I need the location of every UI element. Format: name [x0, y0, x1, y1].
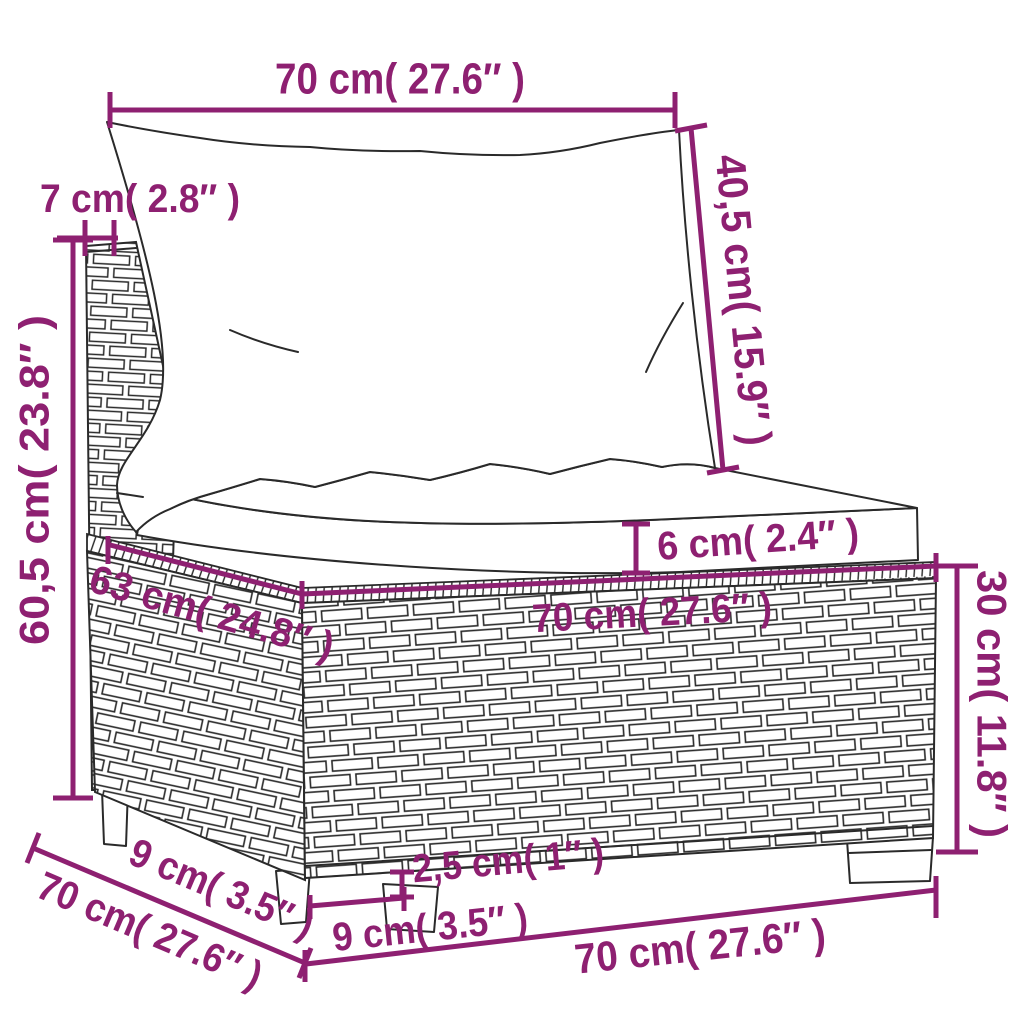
- furniture-dimension-diagram: 70 cm( 27.6″ ) 7 cm( 2.8″ ) 40,5 cm( 15.…: [0, 0, 1024, 1024]
- dim-top-width: 70 cm( 27.6″ ): [110, 54, 675, 128]
- front-right-foot: [847, 837, 933, 883]
- dim-back-thickness-label: 7 cm( 2.8″ ): [40, 177, 240, 221]
- dimension-diagram-page: 70 cm( 27.6″ ) 7 cm( 2.8″ ) 40,5 cm( 15.…: [0, 0, 1024, 1024]
- dim-base-height: 30 cm( 11.8″ ): [936, 566, 1015, 852]
- dim-top-width-label: 70 cm( 27.6″ ): [275, 54, 525, 103]
- dim-base-height-label: 30 cm( 11.8″ ): [968, 570, 1015, 838]
- dim-total-height: 60,5 cm( 23.8″ ): [11, 240, 93, 798]
- dim-total-height-label: 60,5 cm( 23.8″ ): [11, 315, 58, 645]
- dim-bottom-width-label: 70 cm( 27.6″ ): [572, 910, 828, 983]
